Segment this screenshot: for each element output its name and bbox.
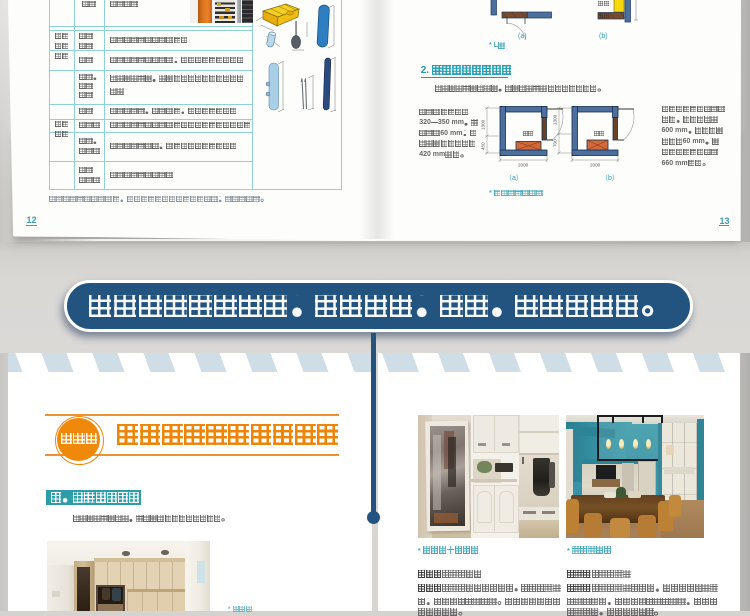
svg-text:1300: 1300	[553, 114, 558, 125]
svg-text:450: 450	[481, 142, 486, 150]
svg-text:2000: 2000	[590, 163, 601, 168]
svg-text:1300: 1300	[481, 119, 486, 130]
svg-text:2000: 2000	[518, 163, 529, 168]
svg-text:700: 700	[553, 139, 558, 147]
